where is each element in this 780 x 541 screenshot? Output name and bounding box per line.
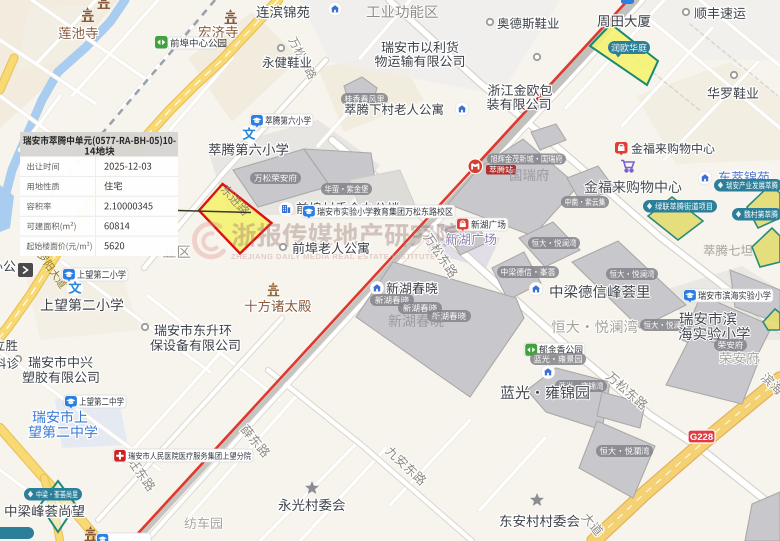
svg-text:G228: G228 bbox=[690, 432, 713, 443]
